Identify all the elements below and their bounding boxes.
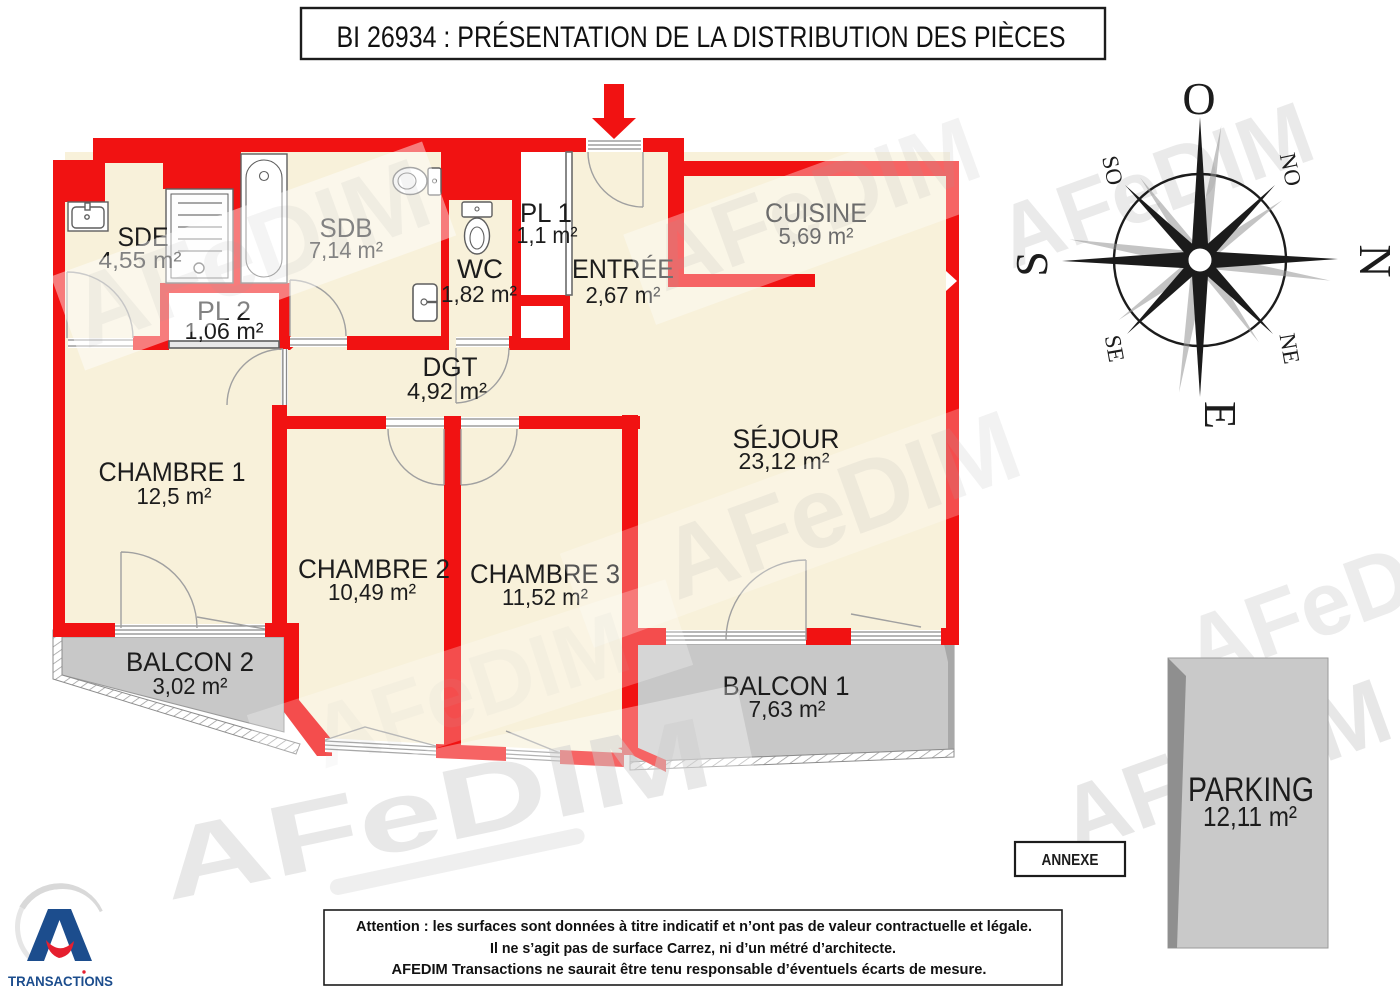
svg-text:3,02 m²: 3,02 m² bbox=[153, 673, 228, 699]
svg-text:10,49 m²: 10,49 m² bbox=[328, 579, 416, 605]
svg-text:N: N bbox=[1350, 244, 1400, 277]
svg-text:4,92 m²: 4,92 m² bbox=[407, 378, 487, 404]
svg-text:AFEDIM Transactions ne saurait: AFEDIM Transactions ne saurait être tenu… bbox=[392, 961, 987, 978]
svg-text:7,63 m²: 7,63 m² bbox=[749, 696, 826, 722]
svg-text:12,11 m²: 12,11 m² bbox=[1203, 801, 1297, 832]
svg-text:12,5 m²: 12,5 m² bbox=[137, 483, 212, 509]
svg-text:O: O bbox=[1182, 73, 1215, 124]
svg-text:S: S bbox=[1006, 251, 1057, 277]
svg-text:WC: WC bbox=[457, 254, 503, 284]
svg-text:SE: SE bbox=[1100, 333, 1129, 364]
svg-text:TRANSACTIONS: TRANSACTIONS bbox=[8, 973, 113, 988]
svg-text:Attention : les surfaces sont: Attention : les surfaces sont données à … bbox=[356, 918, 1032, 935]
svg-text:1,1 m²: 1,1 m² bbox=[517, 222, 578, 248]
svg-text:ANNEXE: ANNEXE bbox=[1042, 852, 1099, 869]
svg-text:BI 26934 : PRÉSENTATION DE LA: BI 26934 : PRÉSENTATION DE LA DISTRIBUTI… bbox=[337, 21, 1066, 54]
svg-text:NE: NE bbox=[1274, 331, 1304, 366]
svg-text:Il ne s’agit pas de surface Ca: Il ne s’agit pas de surface Carrez, ni d… bbox=[490, 940, 896, 957]
svg-text:1,82 m²: 1,82 m² bbox=[441, 281, 517, 307]
svg-text:E: E bbox=[1195, 401, 1246, 429]
